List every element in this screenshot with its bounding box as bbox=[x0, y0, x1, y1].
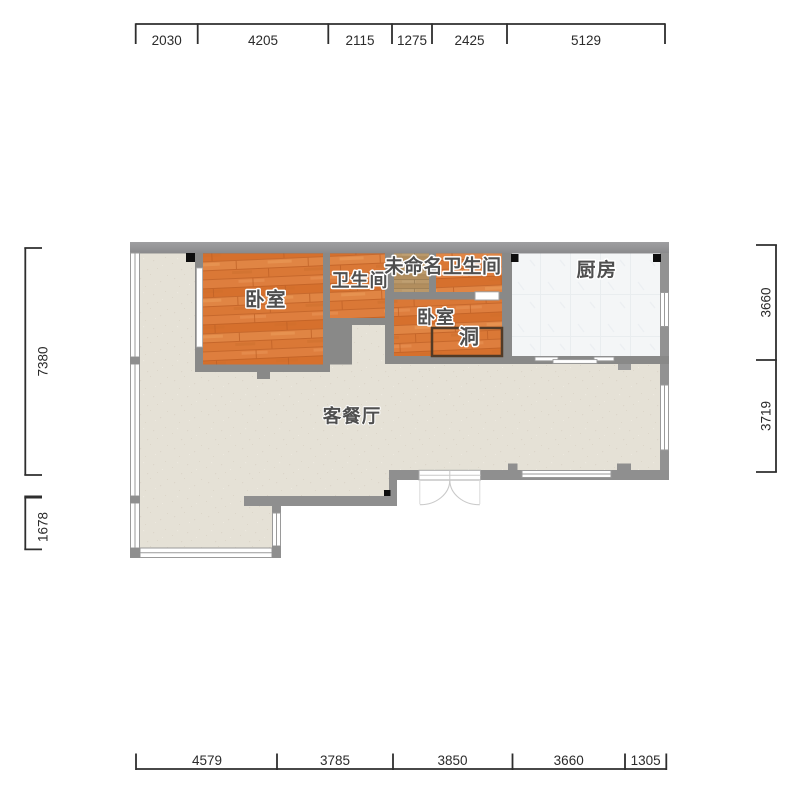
svg-text:卧室: 卧室 bbox=[245, 288, 287, 311]
svg-text:客餐厅: 客餐厅 bbox=[323, 406, 382, 427]
svg-text:卫生间: 卫生间 bbox=[332, 270, 389, 291]
svg-text:3660: 3660 bbox=[759, 287, 774, 317]
svg-text:1305: 1305 bbox=[631, 753, 661, 768]
svg-text:4205: 4205 bbox=[248, 33, 278, 48]
svg-text:3785: 3785 bbox=[320, 753, 350, 768]
svg-text:3850: 3850 bbox=[437, 753, 467, 768]
svg-text:3719: 3719 bbox=[759, 401, 774, 431]
svg-text:2115: 2115 bbox=[345, 33, 374, 48]
svg-text:未命名卫生间: 未命名卫生间 bbox=[383, 255, 501, 278]
svg-text:7380: 7380 bbox=[36, 346, 51, 376]
svg-text:2425: 2425 bbox=[454, 33, 484, 48]
svg-text:5129: 5129 bbox=[571, 33, 601, 48]
svg-text:厨房: 厨房 bbox=[576, 258, 617, 281]
svg-text:4579: 4579 bbox=[192, 753, 222, 768]
svg-text:洞: 洞 bbox=[459, 326, 479, 349]
svg-text:1678: 1678 bbox=[36, 512, 51, 542]
svg-text:卧室: 卧室 bbox=[417, 307, 455, 328]
svg-text:1275: 1275 bbox=[397, 33, 427, 48]
svg-text:3660: 3660 bbox=[554, 753, 584, 768]
svg-text:2030: 2030 bbox=[152, 33, 182, 48]
